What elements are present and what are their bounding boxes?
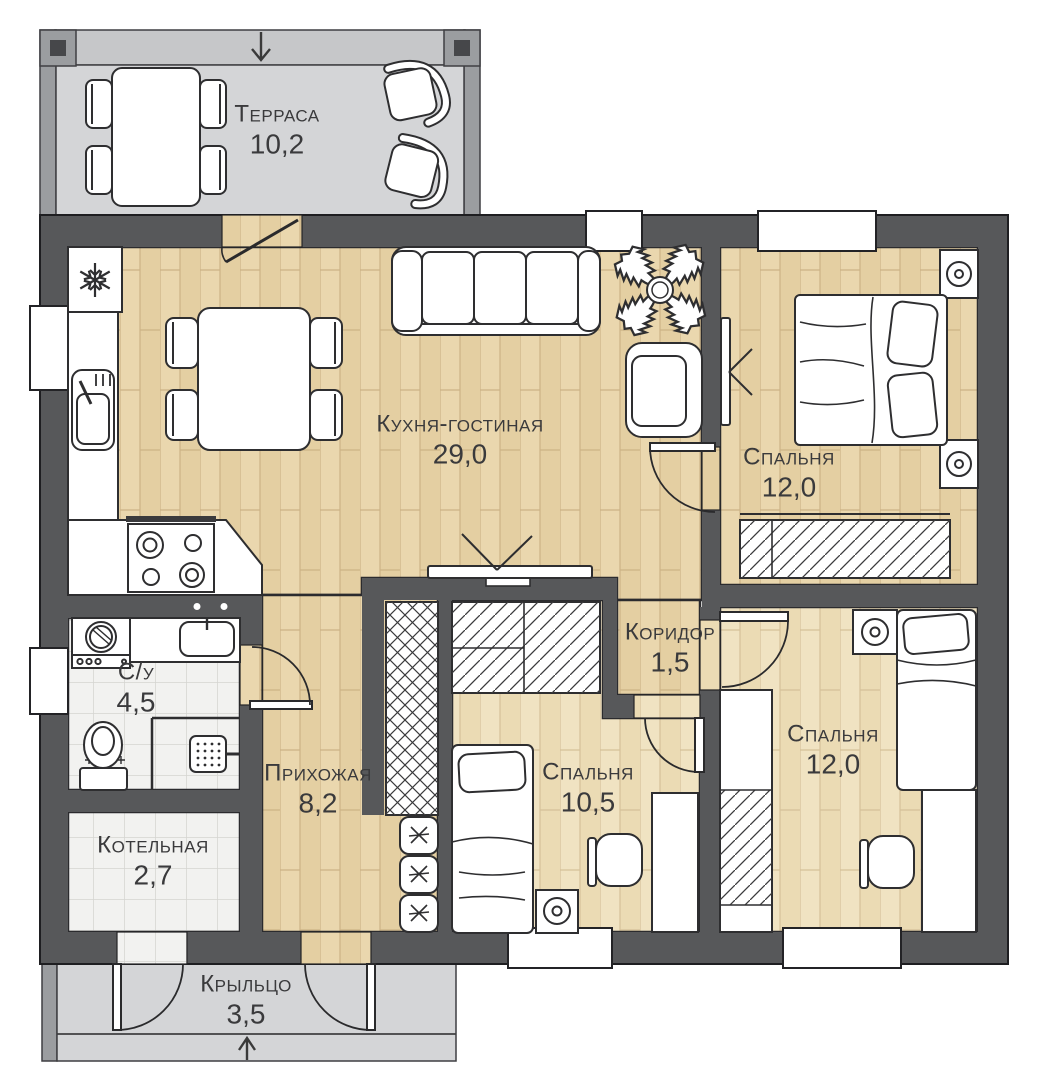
- bathroom-sink: [130, 618, 240, 662]
- nightstand: [940, 250, 978, 298]
- room-label-terrace: Терраса 10,2: [234, 99, 319, 160]
- room-label-corridor: Коридор 1,5: [625, 617, 715, 678]
- wall-kitchen-bedroom1: [702, 247, 720, 585]
- room-label-hallway: Прихожая 8,2: [264, 758, 372, 819]
- window-bedroom-1: [758, 211, 876, 251]
- shower-icon: [190, 736, 226, 772]
- room-label-kitchen-living: Кухня-гостиная 29,0: [376, 409, 543, 470]
- window-kitchen: [30, 306, 68, 390]
- stove: [128, 524, 214, 592]
- room-label-boiler-room: Котельная 2,7: [97, 830, 209, 891]
- room-label-bedroom-3: Спальня 12,0: [787, 719, 879, 780]
- terrace-post: [50, 40, 66, 56]
- single-bed: [897, 610, 976, 790]
- sofa: [392, 247, 600, 335]
- armchair: [626, 343, 702, 437]
- boiler-porch-door-opening: [117, 932, 187, 964]
- pillow: [903, 613, 970, 654]
- room-label-bedroom-1: Спальня 12,0: [743, 442, 835, 503]
- wall-corridor-left: [603, 600, 617, 695]
- window-bathroom: [30, 648, 68, 714]
- room-label-bedroom-2: Спальня 10,5: [542, 757, 634, 818]
- floor-plan-svg: [0, 0, 1046, 1080]
- desk-chair: [588, 834, 642, 886]
- double-bed: [795, 295, 947, 445]
- wall-hallway-bedroom2: [438, 600, 452, 932]
- bathroom-door-opening: [240, 645, 262, 705]
- nightstand: [853, 610, 897, 654]
- desk: [922, 790, 976, 932]
- stove-backsplash: [126, 516, 216, 522]
- lamp-icon: [955, 460, 963, 468]
- bedroom-1-door-opening: [702, 447, 720, 510]
- wardrobe: [720, 690, 772, 932]
- nightstand: [536, 890, 578, 933]
- lamp-icon: [553, 907, 562, 916]
- pillow: [458, 751, 526, 792]
- wall-bedroom1-bedroom3: [702, 585, 978, 607]
- pouf: [400, 817, 438, 932]
- lamp-icon: [871, 628, 880, 637]
- hallway-porch-door-opening: [301, 932, 371, 964]
- lamp-icon: [955, 270, 963, 278]
- single-bed: [452, 745, 533, 933]
- wardrobe: [740, 514, 950, 578]
- bedroom-2-door-opening: [634, 695, 700, 718]
- nightstand: [940, 440, 978, 488]
- room-label-porch: Крыльцо 3,5: [200, 969, 292, 1030]
- wall-right: [978, 215, 1008, 964]
- kitchen-sink: [72, 370, 114, 450]
- floor-plan: Терраса 10,2 Кухня-гостиная 29,0 Спальня…: [0, 0, 1046, 1080]
- room-label-bathroom: С/у 4,5: [117, 657, 156, 718]
- wardrobe: [452, 602, 600, 693]
- wardrobe: [386, 602, 438, 815]
- desk: [652, 793, 698, 932]
- window-living: [586, 211, 642, 251]
- wall-kitchen-bathroom: [40, 595, 262, 618]
- toilet: [80, 722, 127, 790]
- wall-bathroom-boiler: [68, 790, 240, 812]
- pillow: [887, 372, 938, 438]
- window-bedroom-3: [783, 928, 901, 968]
- pillow: [886, 301, 938, 368]
- terrace-post: [454, 40, 470, 56]
- desk-chair: [860, 836, 914, 888]
